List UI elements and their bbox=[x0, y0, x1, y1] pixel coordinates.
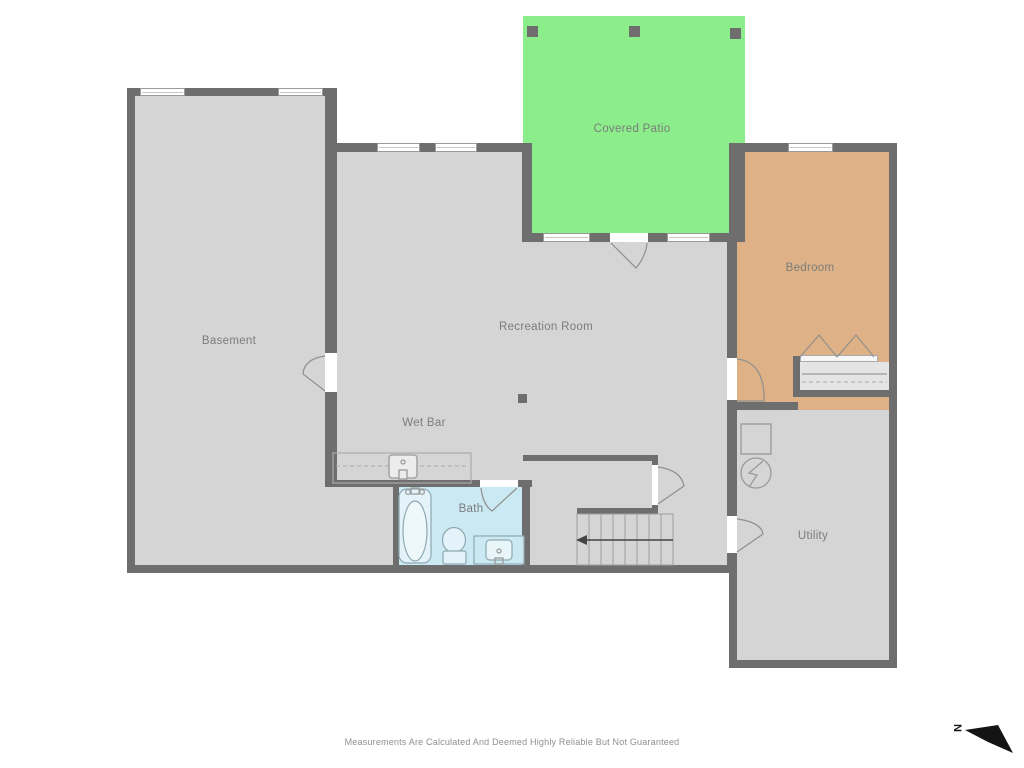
wall bbox=[393, 481, 399, 573]
window bbox=[435, 143, 477, 152]
room-label-wet-bar: Wet Bar bbox=[402, 417, 445, 429]
north-arrow-icon bbox=[965, 725, 1013, 753]
wall bbox=[329, 143, 532, 152]
door-gap bbox=[325, 353, 337, 392]
wall bbox=[522, 481, 530, 573]
wall bbox=[523, 455, 658, 461]
room-label-covered-patio: Covered Patio bbox=[594, 123, 671, 135]
door-gap bbox=[727, 516, 737, 553]
floor-plan: Covered Patio Basement Recreation Room W… bbox=[0, 0, 1024, 768]
wall bbox=[793, 390, 897, 397]
patio-post bbox=[527, 26, 538, 37]
room-label-bath: Bath bbox=[459, 503, 484, 515]
window bbox=[278, 88, 323, 96]
door-gap bbox=[610, 233, 648, 242]
patio-post bbox=[730, 28, 741, 39]
patio-post bbox=[629, 26, 640, 37]
wall bbox=[127, 88, 135, 573]
room-label-recreation-room: Recreation Room bbox=[499, 321, 593, 333]
window bbox=[140, 88, 185, 96]
window bbox=[377, 143, 420, 152]
wall bbox=[793, 356, 800, 397]
bedroom-closet-area bbox=[800, 362, 889, 390]
bath-area bbox=[399, 487, 522, 573]
window bbox=[667, 233, 710, 242]
wall bbox=[889, 143, 897, 668]
room-label-bedroom: Bedroom bbox=[786, 262, 835, 274]
door-gap bbox=[480, 480, 518, 487]
room-label-utility: Utility bbox=[798, 530, 828, 542]
closet-opening bbox=[800, 355, 878, 362]
basement-floor bbox=[127, 88, 337, 573]
recreation-room-floor bbox=[523, 233, 737, 573]
compass-north-label: N bbox=[951, 724, 963, 732]
door-gap bbox=[652, 465, 658, 505]
window bbox=[788, 143, 833, 152]
window bbox=[543, 233, 590, 242]
wall bbox=[577, 508, 658, 514]
wall bbox=[127, 565, 737, 573]
support-post bbox=[518, 394, 527, 403]
door-gap bbox=[727, 358, 737, 400]
wall bbox=[729, 660, 897, 668]
wall bbox=[522, 143, 532, 242]
wall bbox=[729, 573, 737, 668]
disclaimer-text: Measurements Are Calculated And Deemed H… bbox=[345, 737, 680, 747]
room-label-basement: Basement bbox=[202, 335, 256, 347]
wall bbox=[727, 402, 798, 410]
wall bbox=[729, 143, 745, 240]
